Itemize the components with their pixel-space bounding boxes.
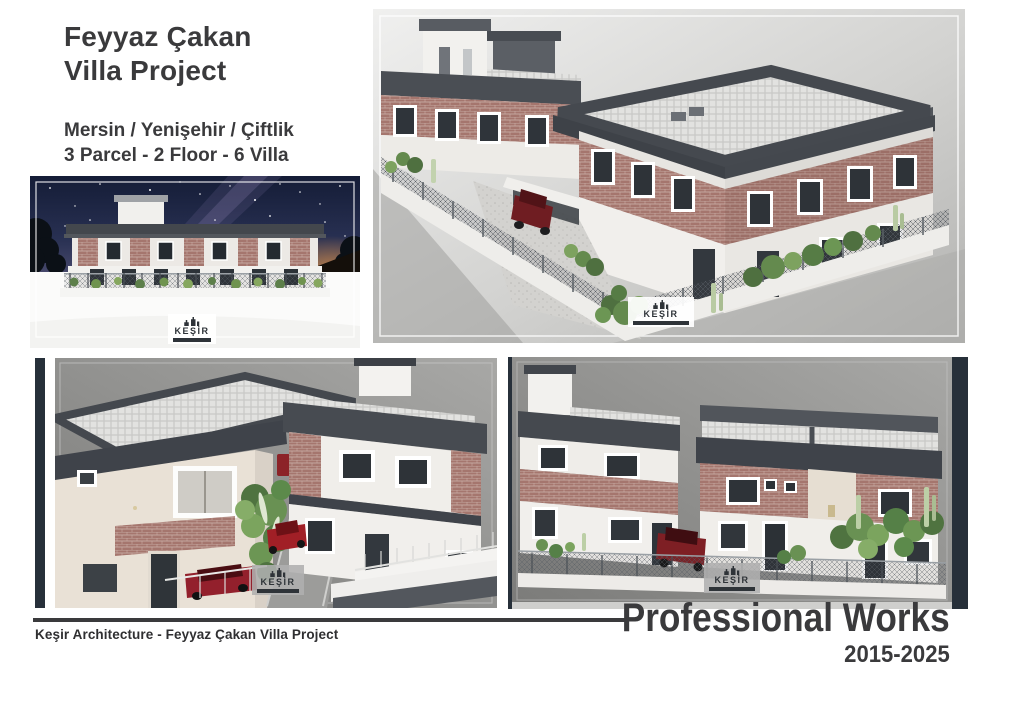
frame-bar-right: [952, 357, 968, 609]
kesir-logo-watermark: KEŞİR: [252, 565, 304, 595]
kesir-logo-watermark: KEŞİR: [704, 563, 760, 593]
title-line-1: Feyyaz Çakan: [64, 20, 252, 54]
garden-fence: [60, 273, 330, 297]
footer-years: 2015-2025: [844, 641, 950, 669]
watermark-brand-text: KEŞİR: [260, 578, 295, 588]
red-car-upper: [277, 454, 290, 476]
building-icon: [182, 317, 202, 326]
frame-bar-left: [35, 358, 45, 608]
project-specs: 3 Parcel - 2 Floor - 6 Villa: [64, 143, 294, 168]
building-icon: [722, 566, 742, 575]
watermark-brand-text: KEŞİR: [643, 310, 678, 320]
watermark-brand-text: KEŞİR: [714, 576, 749, 586]
watermark-subtext-bar: [257, 589, 299, 593]
footer-divider-line: [33, 618, 625, 622]
footer-series-title: Professional Works: [622, 596, 950, 641]
watermark-subtext-bar: [633, 321, 689, 325]
project-location: Mersin / Yenişehir / Çiftlik: [64, 118, 294, 143]
building-icon: [651, 300, 671, 309]
page-title: Feyyaz Çakan Villa Project: [64, 20, 252, 87]
render-closeup-right: KEŞİR: [512, 357, 952, 609]
watermark-subtext-bar: [709, 587, 755, 591]
watermark-subtext-bar: [173, 338, 211, 342]
footer-credit: Keşir Architecture - Feyyaz Çakan Villa …: [35, 627, 338, 642]
kesir-logo-watermark: KEŞİR: [628, 297, 694, 327]
title-line-2: Villa Project: [64, 54, 252, 88]
building-icon: [268, 568, 288, 577]
project-subtitle: Mersin / Yenişehir / Çiftlik 3 Parcel - …: [64, 118, 294, 168]
render-aerial-view: KEŞİR: [373, 9, 965, 343]
kesir-logo-watermark: KEŞİR: [168, 314, 216, 344]
watermark-brand-text: KEŞİR: [174, 327, 209, 337]
render-closeup-left: KEŞİR: [55, 358, 497, 608]
portfolio-page: Feyyaz Çakan Villa Project Mersin / Yeni…: [0, 0, 1024, 724]
aerial-villa-illustration: [373, 9, 965, 343]
render-night-view: KEŞİR: [30, 176, 360, 348]
